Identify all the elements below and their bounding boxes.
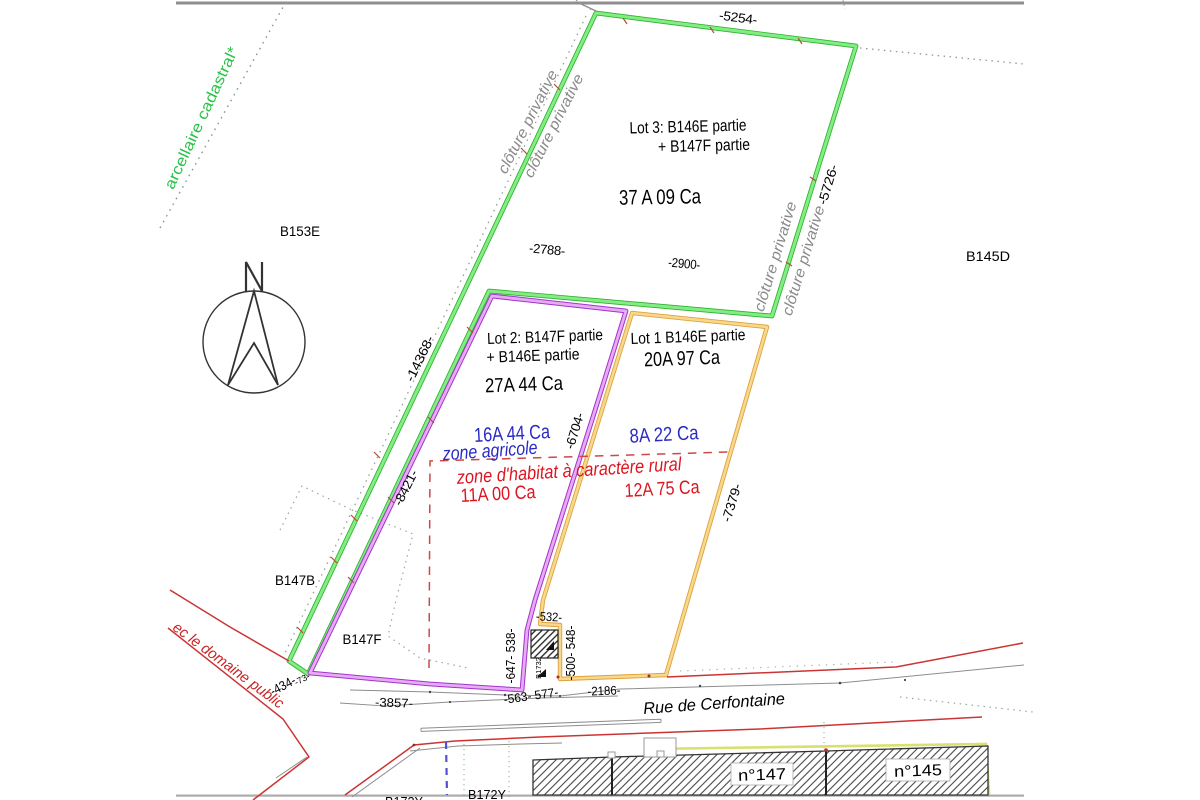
svg-text:n°147: n°147: [738, 766, 787, 785]
svg-text:-647- 538-: -647- 538-: [504, 629, 518, 684]
svg-text:-500- 548-: -500- 548-: [564, 626, 578, 681]
svg-text:-2788-: -2788-: [528, 240, 565, 258]
svg-text:8A 22 Ca: 8A 22 Ca: [629, 422, 700, 448]
svg-text:-532-: -532-: [536, 609, 563, 624]
svg-text:B172Y: B172Y: [385, 795, 424, 800]
svg-text:20A 97 Ca: 20A 97 Ca: [644, 347, 721, 372]
svg-text:-3857-: -3857-: [375, 695, 413, 710]
svg-text:+ B146E partie: + B146E partie: [486, 346, 580, 366]
svg-text:+ B147F partie: + B147F partie: [658, 136, 750, 156]
svg-text:-2900-: -2900-: [667, 255, 700, 273]
svg-text:Lot 3: B146E partie: Lot 3: B146E partie: [629, 116, 746, 137]
svg-text:B153E: B153E: [280, 224, 320, 239]
svg-text:11A 00 Ca: 11A 00 Ca: [460, 482, 536, 507]
svg-text:B147B: B147B: [275, 573, 315, 588]
svg-text:27A 44 Ca: 27A 44 Ca: [485, 373, 564, 398]
svg-text:B147F: B147F: [343, 631, 382, 647]
svg-text:37 A 09 Ca: 37 A 09 Ca: [619, 185, 702, 209]
svg-text:B172Y: B172Y: [468, 788, 507, 800]
svg-text:B145D: B145D: [966, 249, 1010, 264]
svg-text:-2186-: -2186-: [587, 683, 620, 698]
svg-text:n°145: n°145: [894, 762, 943, 781]
svg-text:12A 75 Ca: 12A 75 Ca: [624, 477, 700, 502]
